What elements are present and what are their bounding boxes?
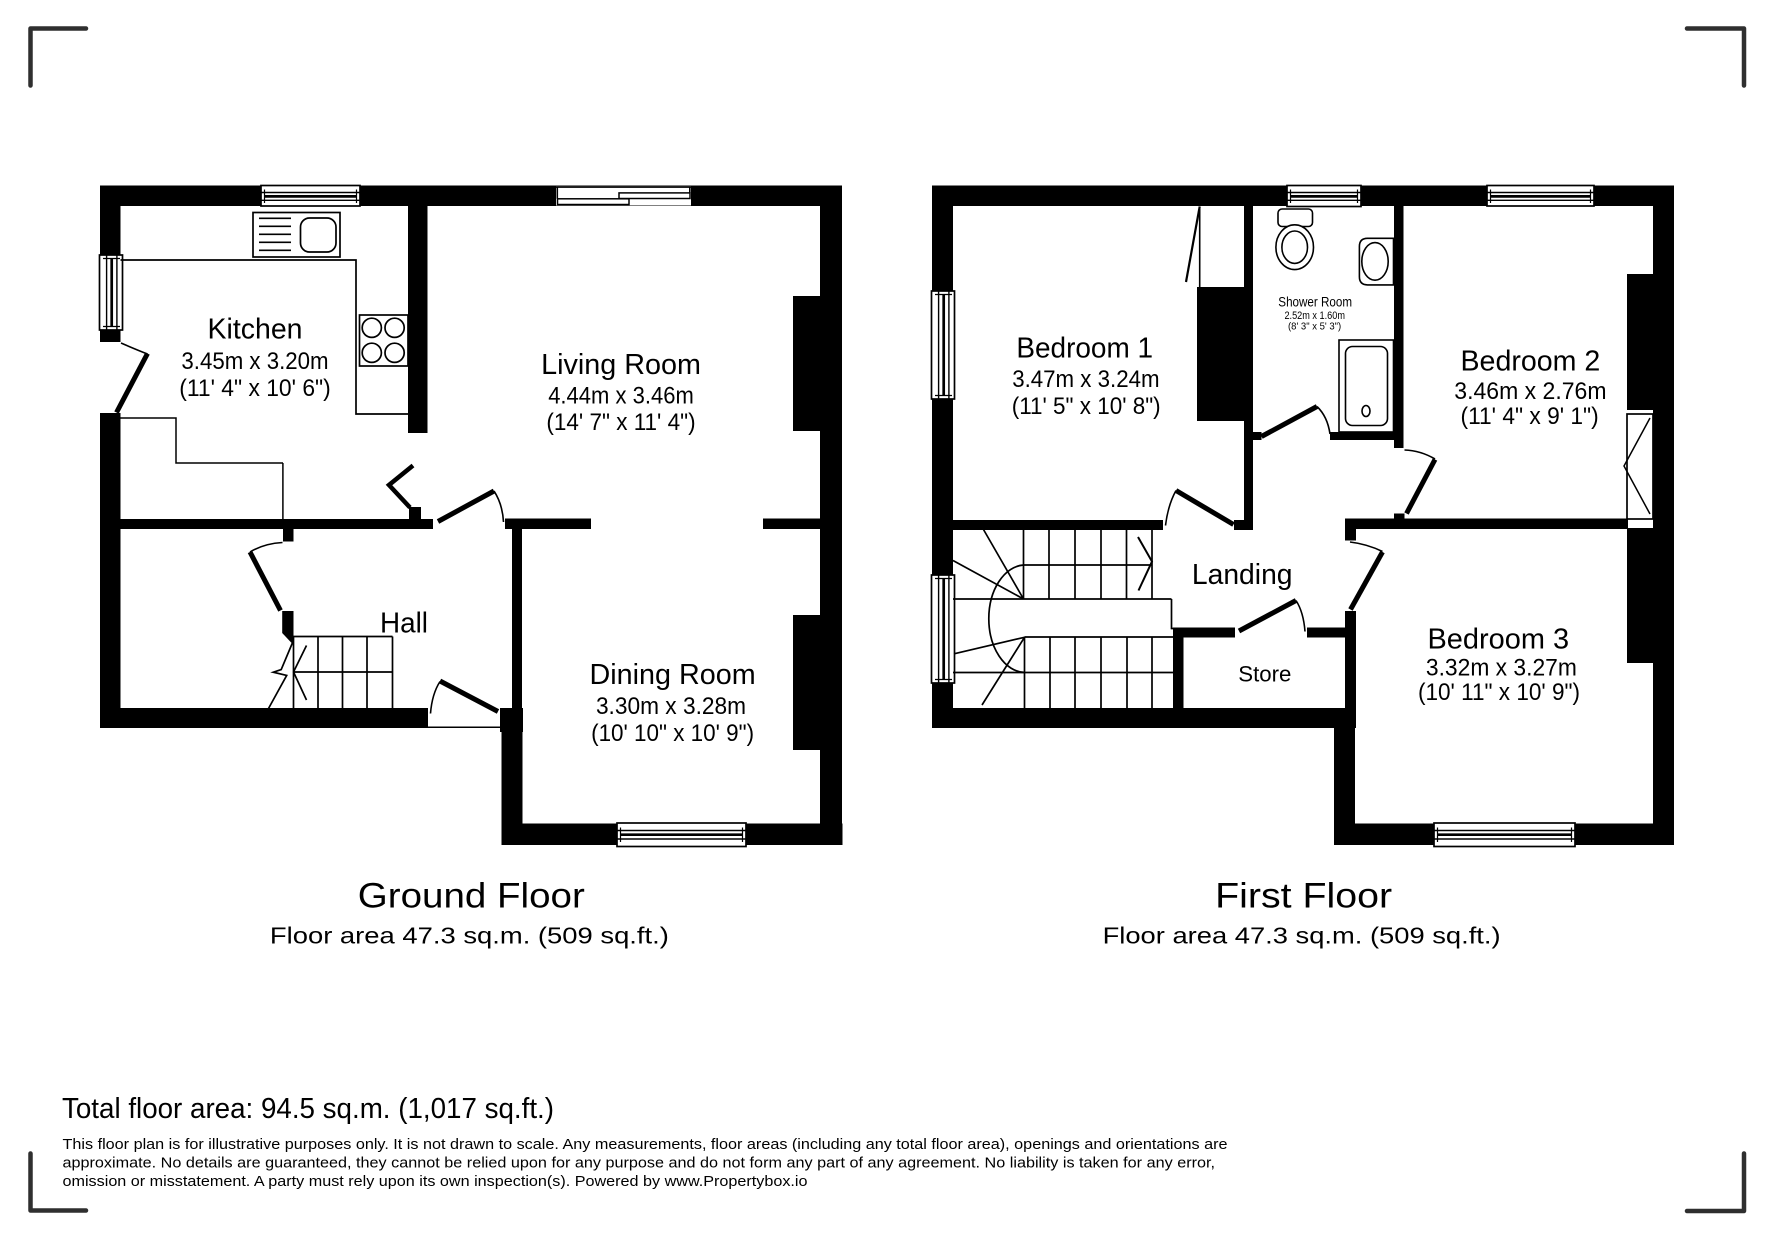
- svg-text:Ground Floor: Ground Floor: [358, 876, 585, 916]
- svg-text:(14' 7" x 11' 4"): (14' 7" x 11' 4"): [546, 409, 695, 436]
- svg-text:3.45m x 3.20m: 3.45m x 3.20m: [181, 348, 328, 375]
- svg-text:Floor area 47.3 sq.m. (509 sq.: Floor area 47.3 sq.m. (509 sq.ft.): [1103, 923, 1501, 949]
- svg-text:(11' 4" x 10' 6"): (11' 4" x 10' 6"): [179, 375, 331, 402]
- svg-text:3.32m x 3.27m: 3.32m x 3.27m: [1426, 655, 1577, 682]
- svg-text:Landing: Landing: [1192, 559, 1293, 591]
- svg-text:Bedroom 2: Bedroom 2: [1461, 346, 1601, 378]
- svg-text:(11' 5" x 10' 8"): (11' 5" x 10' 8"): [1012, 393, 1161, 420]
- svg-text:Total floor area: 94.5 sq.m. (: Total floor area: 94.5 sq.m. (1,017 sq.f…: [62, 1093, 554, 1125]
- svg-text:Kitchen: Kitchen: [208, 314, 303, 346]
- svg-text:4.44m x 3.46m: 4.44m x 3.46m: [548, 383, 694, 410]
- svg-text:approximate. No details are gu: approximate. No details are guaranteed, …: [63, 1155, 1216, 1172]
- svg-text:3.46m x 2.76m: 3.46m x 2.76m: [1454, 378, 1606, 405]
- svg-text:Dining Room: Dining Room: [590, 659, 756, 691]
- svg-text:omission or misstatement. A pa: omission or misstatement. A party must r…: [63, 1173, 808, 1190]
- svg-text:3.47m x 3.24m: 3.47m x 3.24m: [1012, 366, 1159, 393]
- svg-text:(10' 10" x 10' 9"): (10' 10" x 10' 9"): [591, 720, 754, 747]
- svg-text:This floor plan is for illustr: This floor plan is for illustrative purp…: [63, 1136, 1228, 1153]
- svg-text:3.30m x 3.28m: 3.30m x 3.28m: [596, 693, 746, 720]
- svg-text:Store: Store: [1238, 661, 1291, 686]
- svg-text:First Floor: First Floor: [1215, 876, 1392, 916]
- svg-text:Bedroom 1: Bedroom 1: [1016, 333, 1153, 365]
- svg-text:Hall: Hall: [380, 608, 428, 640]
- svg-text:Living Room: Living Room: [541, 349, 701, 381]
- svg-text:Shower Room: Shower Room: [1278, 295, 1352, 310]
- svg-text:(10' 11" x 10' 9"): (10' 11" x 10' 9"): [1418, 679, 1580, 706]
- svg-text:Floor area 47.3 sq.m. (509 sq.: Floor area 47.3 sq.m. (509 sq.ft.): [270, 923, 669, 949]
- svg-text:(8' 3" x 5' 3"): (8' 3" x 5' 3"): [1288, 321, 1341, 333]
- svg-text:(11' 4" x 9' 1"): (11' 4" x 9' 1"): [1461, 403, 1599, 430]
- svg-text:Bedroom 3: Bedroom 3: [1428, 624, 1570, 656]
